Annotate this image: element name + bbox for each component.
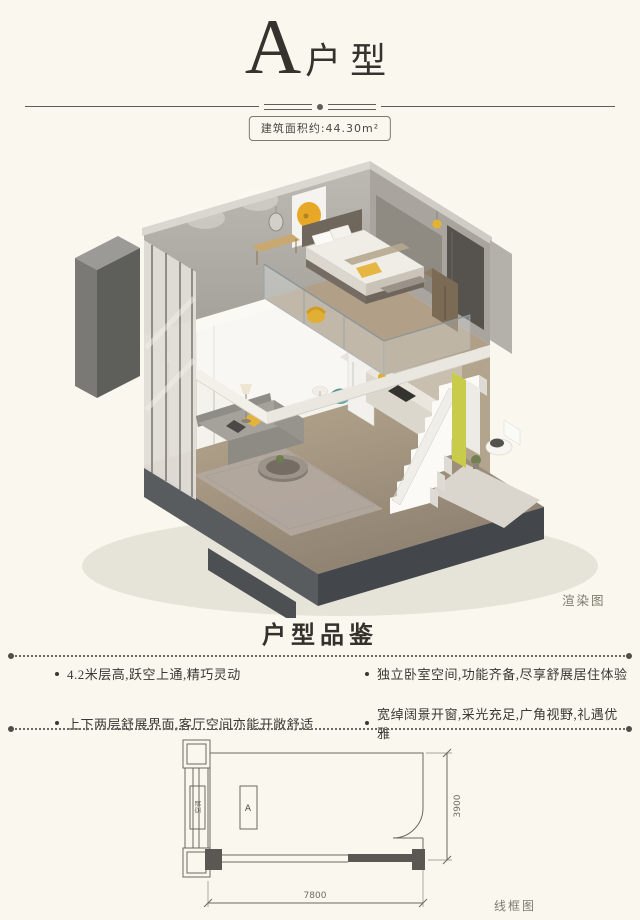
floorplan-drawing: A 空调 3900 7800 — [0, 735, 640, 920]
feature-list: 4.2米层高,跃空上通,精巧灵动 独立卧室空间,功能齐备,尽享舒展居住体验 上下… — [55, 664, 630, 742]
brochure-page: A 户型 建筑面积约:44.30m² — [0, 0, 640, 920]
title-divider — [25, 102, 615, 112]
plan-dim-depth: 3900 — [453, 794, 463, 817]
dotted-rule — [11, 655, 629, 657]
mirror — [269, 213, 283, 231]
accent-panel — [452, 372, 466, 468]
section-title: 户型品鉴 — [0, 615, 640, 650]
render-caption: 渲染图 — [562, 590, 606, 609]
feature-item: 4.2米层高,跃空上通,精巧灵动 — [55, 664, 365, 683]
feature-item: 独立卧室空间,功能齐备,尽享舒展居住体验 — [365, 664, 630, 683]
plan-solid-walls — [205, 849, 425, 870]
ornament-dot — [317, 104, 323, 110]
bullet-dot — [55, 721, 59, 725]
render-illustration — [0, 148, 640, 618]
feature-text: 独立卧室空间,功能齐备,尽享舒展居住体验 — [377, 664, 628, 683]
left-window-wall — [144, 240, 196, 500]
plan-side-label: 空调 — [193, 801, 202, 814]
bullet-dot — [365, 721, 369, 725]
feature-text: 4.2米层高,跃空上通,精巧灵动 — [67, 664, 241, 683]
bullet-dot — [365, 672, 369, 676]
render-svg — [0, 148, 640, 618]
floorplan-svg: A 空调 3900 7800 — [0, 735, 640, 920]
ac-equipment-box — [75, 236, 140, 398]
bullet-dot — [55, 672, 59, 676]
plan-caption: 线框图 — [494, 897, 536, 914]
plan-room-label: A — [245, 804, 252, 814]
dotted-rule — [11, 728, 629, 730]
area-badge: 建筑面积约:44.30m² — [249, 116, 391, 141]
plan-dim-width: 7800 — [304, 891, 327, 901]
ornament-segment — [264, 104, 312, 110]
coffee-table — [258, 455, 308, 482]
pendant-light — [433, 220, 442, 229]
ornament-segment — [328, 104, 376, 110]
yellow-armchair — [307, 308, 325, 323]
page-title: A 户型 — [0, 8, 640, 86]
plan-lines — [183, 740, 452, 907]
unit-letter: A — [245, 8, 301, 86]
unit-type-label: 户型 — [305, 32, 395, 84]
divider-ornament — [259, 102, 381, 112]
